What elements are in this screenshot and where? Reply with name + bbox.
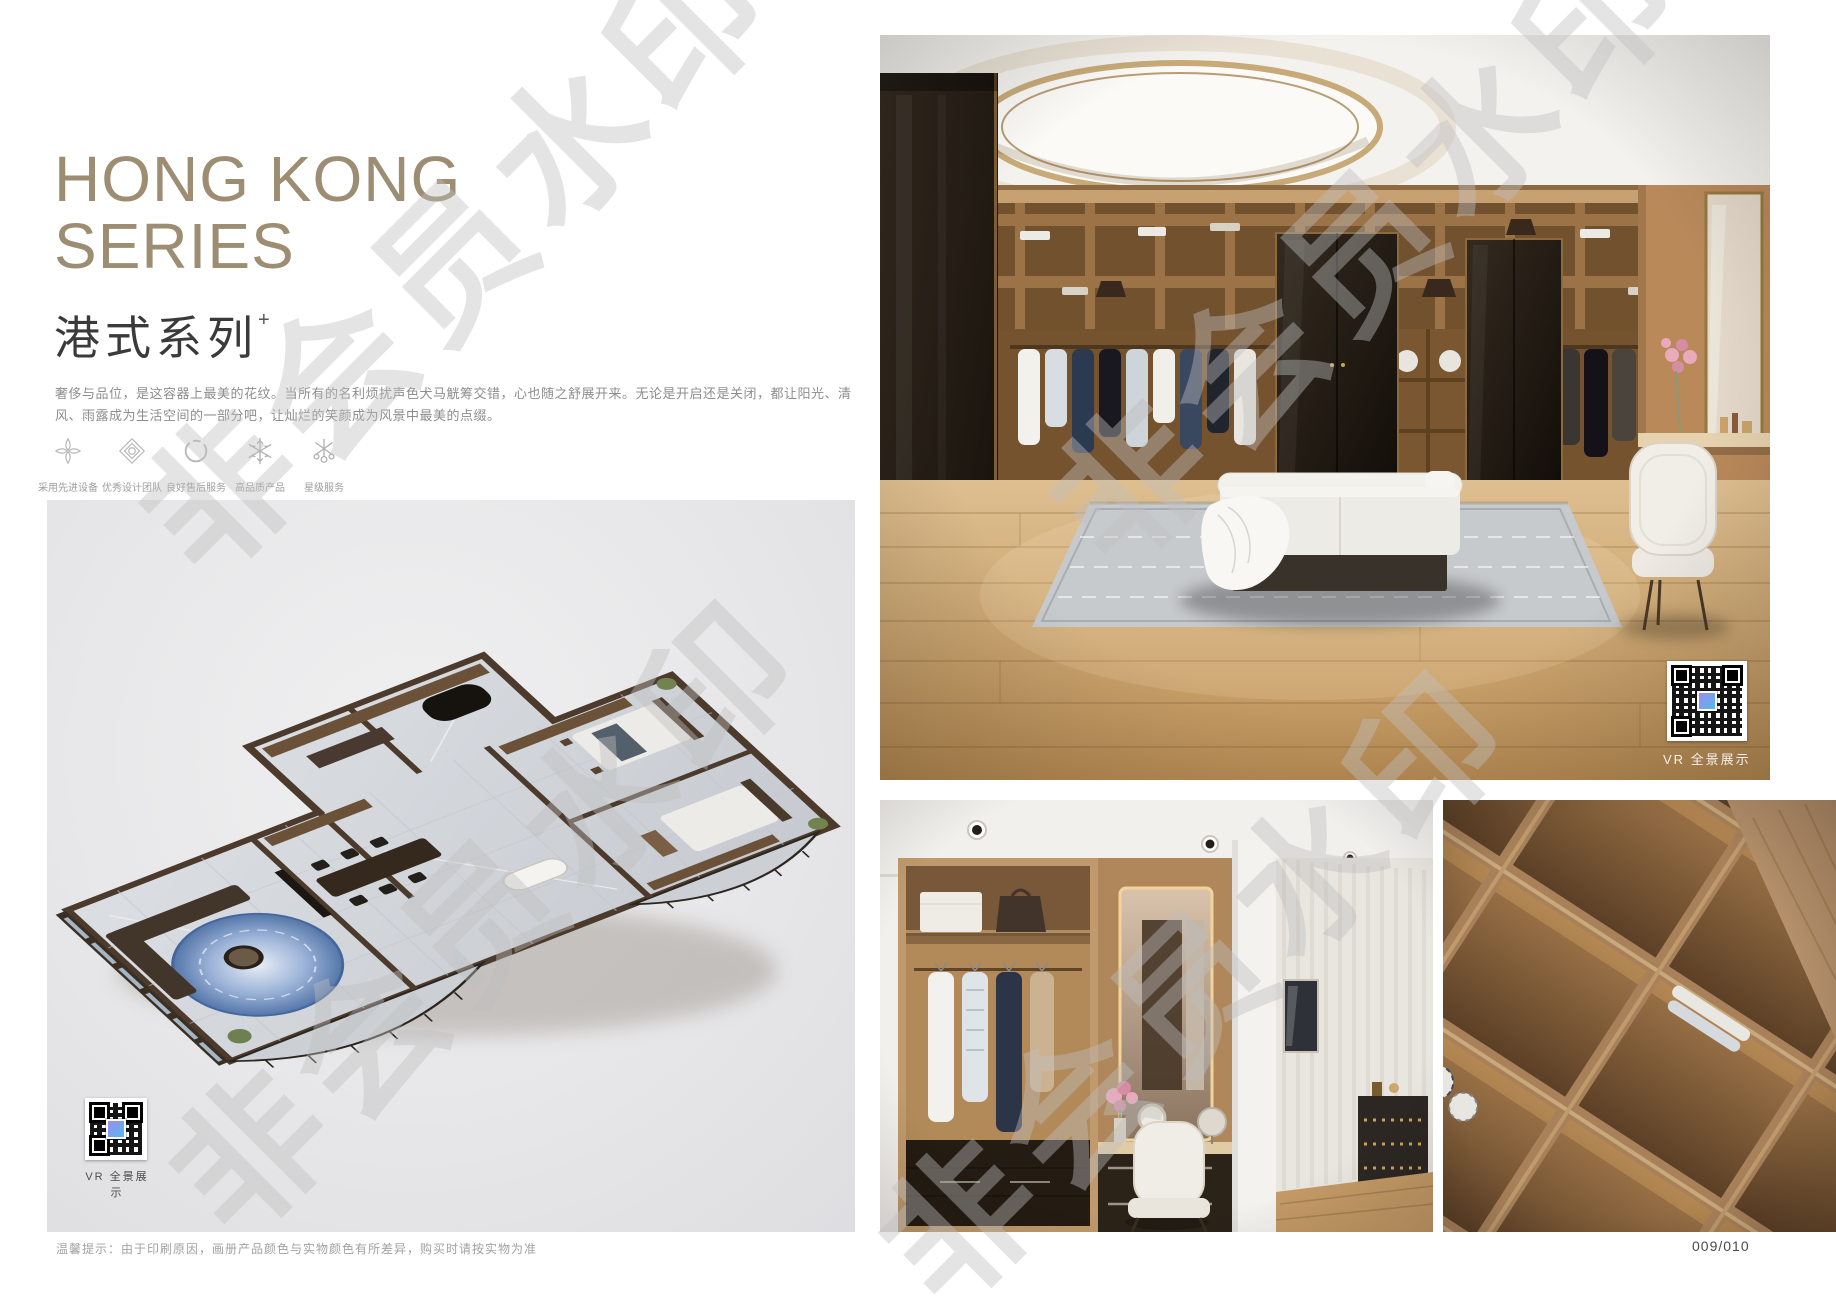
feature-item: 采用先进设备 [36,436,100,494]
feature-label: 星级服务 [304,479,344,494]
feature-label: 高品质产品 [235,479,285,494]
plus-mark: + [258,309,270,331]
description-line: 风、雨露成为生活空间的一部分吧，让灿烂的笑颜成为风景中最美的点缀。 [55,405,852,427]
star-service-icon [309,436,339,466]
printing-note: 温馨提示：由于印刷原因，画册产品颜色与实物颜色有所差异，购买时请按实物为准 [56,1240,537,1257]
feature-label: 优秀设计团队 [102,479,162,494]
feature-item: 优秀设计团队 [100,436,164,494]
description-line: 奢侈与品位，是这容器上最美的花纹。当所有的名利烦扰声色犬马觥筹交错，心也随之舒展… [55,383,852,405]
series-description: 奢侈与品位，是这容器上最美的花纹。当所有的名利烦扰声色犬马觥筹交错，心也随之舒展… [55,383,852,427]
series-title-cn: 港式系列+ [54,302,270,368]
shelf-detail-photo [1443,800,1836,1232]
main-photo-walk-in-closet: VR 全景展示 [880,35,1770,780]
series-title-line1: HONG KONG [54,146,461,213]
feature-label: 良好售后服务 [166,479,226,494]
snowflake-icon [245,436,275,466]
ornament-flower-icon [53,436,83,466]
shelf-illustration [1443,800,1836,1232]
feature-item: 高品质产品 [228,436,292,494]
vr-qr-label: VR 全景展示 [79,1168,155,1200]
feature-item: 星级服务 [292,436,356,494]
floorplan-illustration [47,500,855,1232]
feature-item: 良好售后服务 [164,436,228,494]
vr-cube-icon [1697,691,1717,711]
vr-qr-code [1667,661,1747,741]
vr-cube-icon [106,1119,126,1139]
feature-list: 采用先进设备 优秀设计团队 良好售后服务 [36,436,356,494]
catalog-page: HONG KONG SERIES 港式系列+ 奢侈与品位，是这容器上最美的花纹。… [0,0,1836,1307]
dressing-illustration [880,800,1433,1232]
ring-icon [181,436,211,466]
dressing-area-photo [880,800,1433,1232]
page-number: 009/010 [1692,1238,1750,1254]
vr-qr-code [85,1098,147,1160]
series-title-en: HONG KONG SERIES [54,146,461,280]
floorplan-panel: VR 全景展示 [47,500,855,1232]
closet-illustration [880,35,1770,780]
vr-qr-label: VR 全景展示 [1663,749,1753,768]
feature-label: 采用先进设备 [38,479,98,494]
series-title-line2: SERIES [54,213,461,280]
ornament-diamond-icon [117,436,147,466]
